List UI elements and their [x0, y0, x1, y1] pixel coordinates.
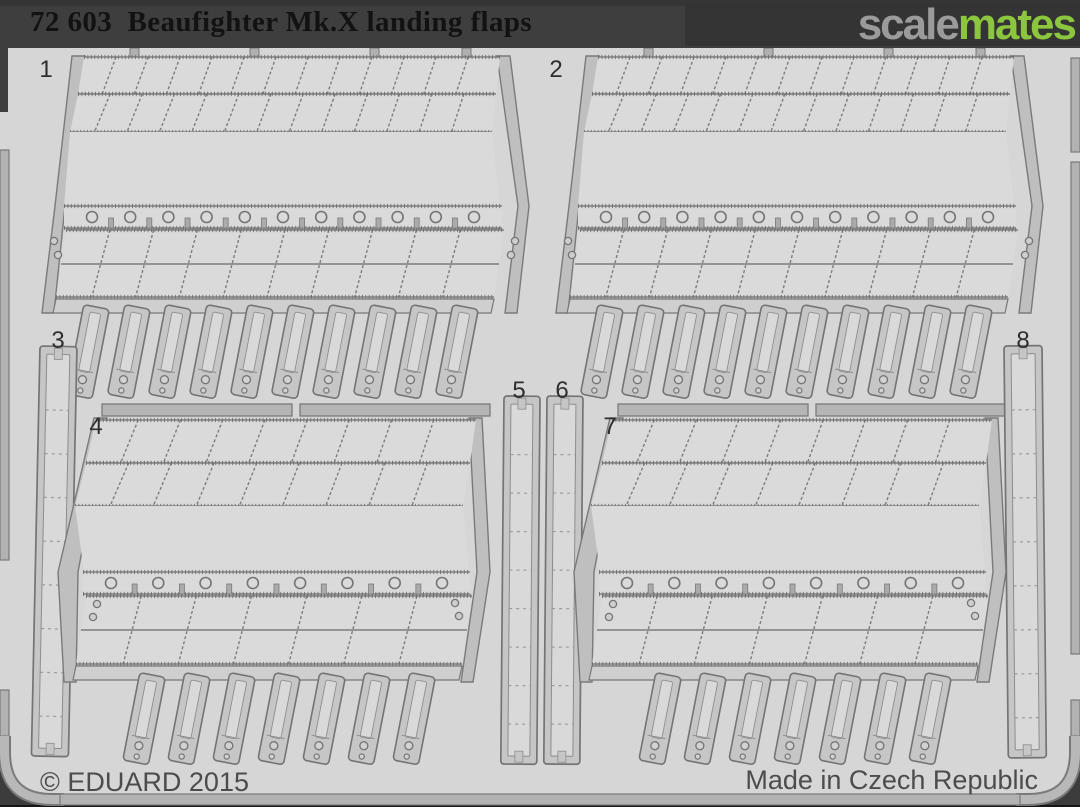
part-number-4: 4 — [89, 413, 102, 441]
logo-text-scale: scale — [858, 0, 958, 49]
logo-text-mates: mates — [958, 0, 1075, 49]
part-number-6: 6 — [555, 377, 568, 405]
part-number-1: 1 — [39, 56, 52, 84]
part-number-2: 2 — [549, 56, 562, 84]
scalemates-logo: scalemates — [858, 0, 1075, 48]
part-number-7: 7 — [603, 413, 616, 441]
part-5 — [501, 396, 540, 764]
part-number-5: 5 — [512, 377, 525, 405]
fret-rail — [618, 404, 808, 416]
copyright-text: © EDUARD 2015 — [40, 767, 249, 798]
header-bar: 72 603 Beaufighter Mk.X landing flaps sc… — [0, 0, 1080, 48]
part-number-3: 3 — [51, 327, 64, 355]
fret-rail — [102, 404, 292, 416]
fret-rail — [816, 404, 1006, 416]
made-in-text: Made in Czech Republic — [745, 765, 1038, 796]
fret-rail — [300, 404, 490, 416]
photo-etch-fret-photo — [0, 0, 1080, 807]
part-number-8: 8 — [1016, 327, 1029, 355]
product-title: 72 603 Beaufighter Mk.X landing flaps — [30, 6, 532, 39]
part-8 — [1004, 346, 1046, 758]
